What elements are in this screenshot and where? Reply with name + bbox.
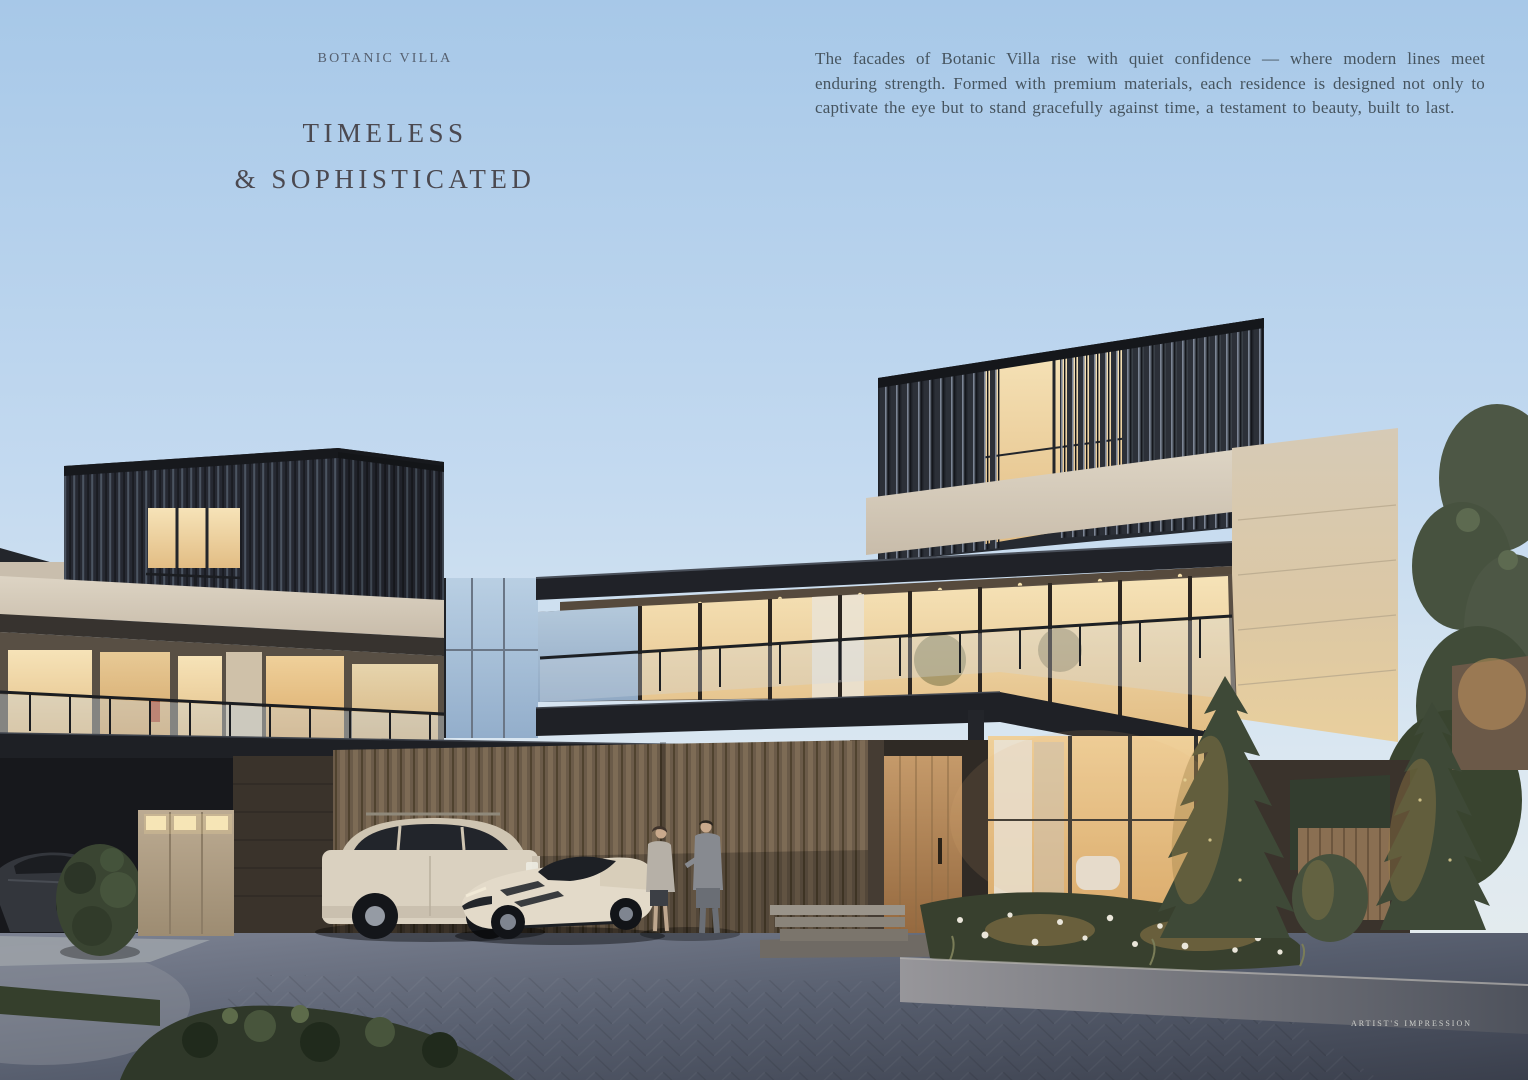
title-block: BOTANIC VILLA TIMELESS & SOPHISTICATED [150,52,620,202]
left-rooftop-window [148,508,240,568]
page-title: TIMELESS & SOPHISTICATED [150,110,620,202]
mailbox-cabinets [138,810,234,936]
intro-paragraph: The facades of Botanic Villa rise with q… [815,47,1485,121]
boundary-stone-wall [1452,656,1528,770]
left-louvre-volume [64,448,444,601]
right-stone-tower [1232,428,1398,742]
gap-glazing [442,578,538,738]
door-handle [938,838,942,864]
page-title-line-1: TIMELESS [150,110,620,156]
artist-impression-credit: ARTIST'S IMPRESSION [1351,1019,1472,1028]
brick-pier [233,756,333,936]
project-eyebrow: BOTANIC VILLA [150,52,620,66]
brochure-page: BOTANIC VILLA TIMELESS & SOPHISTICATED T… [0,0,1528,1080]
page-title-line-2: & SOPHISTICATED [150,156,620,202]
